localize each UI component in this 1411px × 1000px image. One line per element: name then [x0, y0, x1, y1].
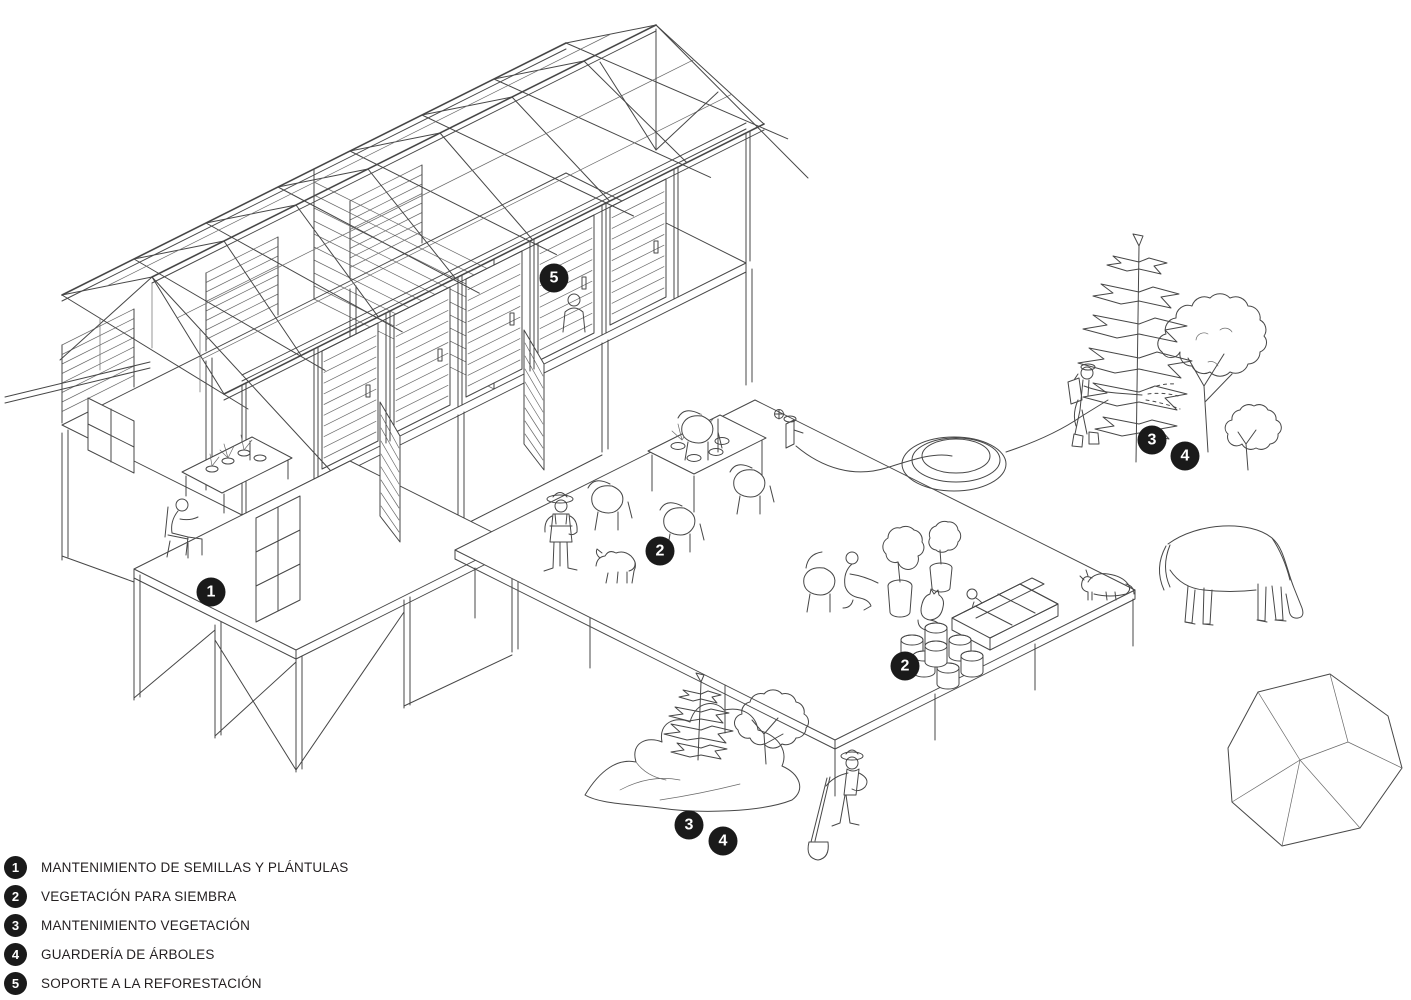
legend-item-label: SOPORTE A LA REFORESTACIÓN — [41, 976, 262, 991]
callout-marker-4: 4 — [709, 827, 738, 856]
callout-marker-3: 3 — [675, 811, 704, 840]
legend-item-4: 4 GUARDERÍA DE ÁRBOLES — [4, 943, 349, 966]
legend-item-label: MANTENIMIENTO VEGETACIÓN — [41, 918, 250, 933]
seedling-cylinder — [961, 651, 983, 677]
legend-number-badge: 5 — [4, 972, 27, 995]
left-porch-deck — [134, 461, 512, 659]
legend-item-3: 3 MANTENIMIENTO VEGETACIÓN — [4, 914, 349, 937]
callout-marker-4: 4 — [1171, 442, 1200, 471]
legend-number-badge: 3 — [4, 914, 27, 937]
callout-marker-2: 2 — [891, 652, 920, 681]
legend: 1 MANTENIMIENTO DE SEMILLAS Y PLÁNTULAS … — [4, 856, 349, 995]
araucaria-tree-right — [1078, 234, 1192, 462]
axonometric-diagram-page: 15223434 1 MANTENIMIENTO DE SEMILLAS Y P… — [0, 0, 1411, 1000]
seedling-cylinder — [925, 641, 947, 667]
legend-item-1: 1 MANTENIMIENTO DE SEMILLAS Y PLÁNTULAS — [4, 856, 349, 879]
legend-item-label: VEGETACIÓN PARA SIEMBRA — [41, 889, 236, 904]
legend-item-label: MANTENIMIENTO DE SEMILLAS Y PLÁNTULAS — [41, 860, 349, 875]
horse-figure — [1159, 526, 1302, 625]
legend-item-label: GUARDERÍA DE ÁRBOLES — [41, 947, 215, 962]
legend-item-5: 5 SOPORTE A LA REFORESTACIÓN — [4, 972, 349, 995]
callout-marker-1: 1 — [197, 578, 226, 607]
callout-marker-5: 5 — [540, 264, 569, 293]
callout-marker-3: 3 — [1138, 426, 1167, 455]
terrain-mound — [585, 704, 800, 812]
legend-number-badge: 1 — [4, 856, 27, 879]
shrub-right-small — [1225, 405, 1281, 470]
callout-marker-2: 2 — [646, 537, 675, 566]
araucaria-tree-bottom — [664, 673, 733, 760]
legend-item-2: 2 VEGETACIÓN PARA SIEMBRA — [4, 885, 349, 908]
axonometric-drawing — [0, 0, 1411, 1000]
legend-number-badge: 2 — [4, 885, 27, 908]
boulder — [1228, 674, 1402, 846]
shrub-right-large — [1158, 294, 1267, 452]
shovel-figure — [808, 750, 867, 860]
legend-number-badge: 4 — [4, 943, 27, 966]
